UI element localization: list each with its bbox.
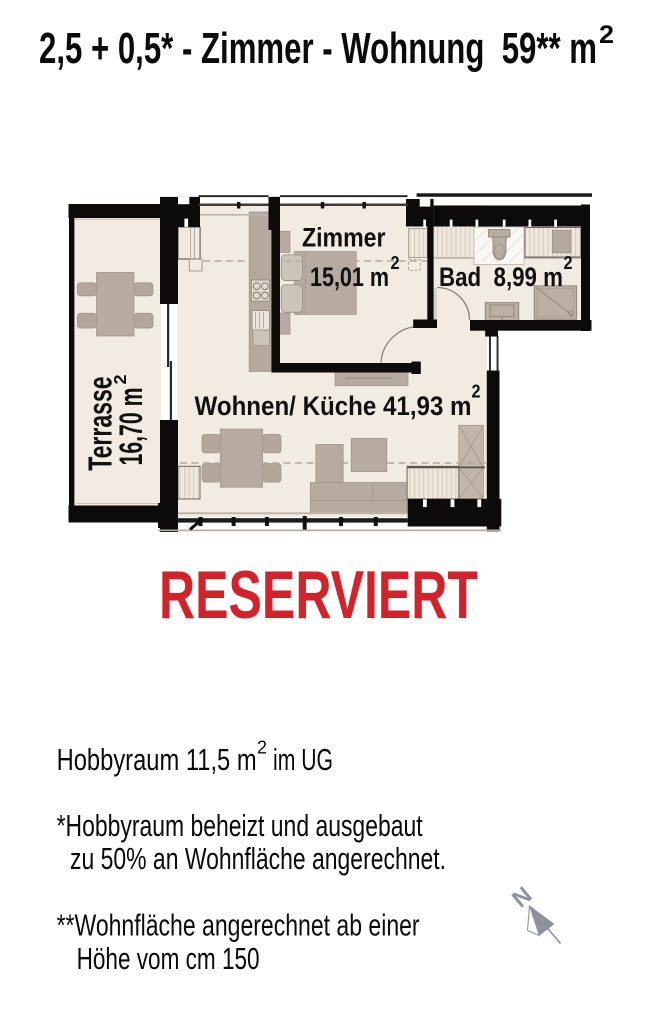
svg-text:2,5 + 0,5* - Zimmer - Wohnung: 2,5 + 0,5* - Zimmer - Wohnung 59** m (39, 25, 597, 73)
svg-text:16,70 m: 16,70 m (113, 388, 149, 466)
svg-text:zu 50% an Wohnfläche angerechn: zu 50% an Wohnfläche angerechnet. (70, 841, 446, 876)
svg-text:Zimmer: Zimmer (302, 223, 386, 253)
svg-text:2: 2 (472, 382, 481, 402)
svg-text:Bad 8,99 m: Bad 8,99 m (439, 262, 563, 292)
svg-text:Wohnen/ Küche 41,93 m: Wohnen/ Küche 41,93 m (195, 391, 472, 421)
svg-text:2: 2 (564, 253, 573, 273)
svg-text:2: 2 (391, 253, 400, 273)
svg-text:im UG: im UG (273, 742, 333, 777)
svg-text:Höhe vom cm 150: Höhe vom cm 150 (77, 941, 260, 976)
svg-text:2: 2 (599, 21, 614, 49)
svg-text:Hobbyraum 11,5 m: Hobbyraum 11,5 m (57, 742, 257, 777)
svg-text:*Hobbyraum beheizt und ausgeba: *Hobbyraum beheizt und ausgebaut (57, 808, 423, 843)
svg-text:RESERVIERT: RESERVIERT (159, 557, 478, 633)
svg-text:2: 2 (257, 738, 267, 758)
svg-text:15,01 m: 15,01 m (310, 262, 389, 292)
svg-text:**Wohnfläche angerechnet ab ei: **Wohnfläche angerechnet ab einer (57, 908, 420, 943)
svg-text:2: 2 (110, 374, 130, 384)
